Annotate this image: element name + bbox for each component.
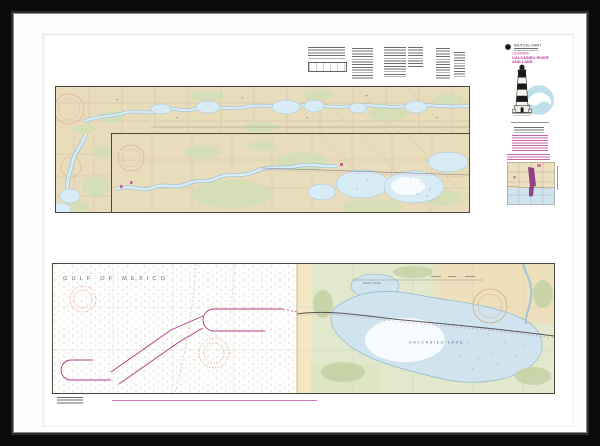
coverage-inset-map <box>507 162 555 205</box>
gulf-of-mexico-label: GULF OF MEXICO <box>63 276 169 282</box>
edition-note <box>57 397 83 404</box>
lighthouse-icon <box>512 64 532 122</box>
chart-note-block <box>454 52 465 78</box>
west-cove-label: WEST COVE <box>363 282 381 285</box>
notes-block <box>514 127 544 133</box>
river-strip-a <box>56 87 469 134</box>
calcasieu-lake-label: CALCASIEU LAKE <box>409 341 464 345</box>
noaa-seal-icon <box>505 44 511 50</box>
beach-strip <box>297 264 311 393</box>
chart-series-label: NAUTICAL CHART <box>514 44 541 47</box>
notes-block-magenta <box>512 135 548 152</box>
chart-note-block <box>352 48 373 80</box>
chart-note-block <box>436 48 450 79</box>
river-strip-left <box>56 134 112 212</box>
upper-strip-chart-panel <box>55 86 470 213</box>
chart-note-block <box>308 47 345 59</box>
gulf-lake-panel: GULF OF MEXICO CALCASIEU LAKE WEST COVE <box>52 263 555 394</box>
chart-logo-table <box>308 62 347 72</box>
inset-caption <box>507 154 550 160</box>
margin-note-magenta <box>112 400 317 401</box>
lower-strip-inset <box>111 133 470 213</box>
lighthouse-caption <box>511 122 549 123</box>
chart-series-subline <box>514 48 538 51</box>
inset-side-number <box>557 166 558 190</box>
chart-note-block <box>408 47 423 67</box>
chart-note-block <box>384 47 406 77</box>
